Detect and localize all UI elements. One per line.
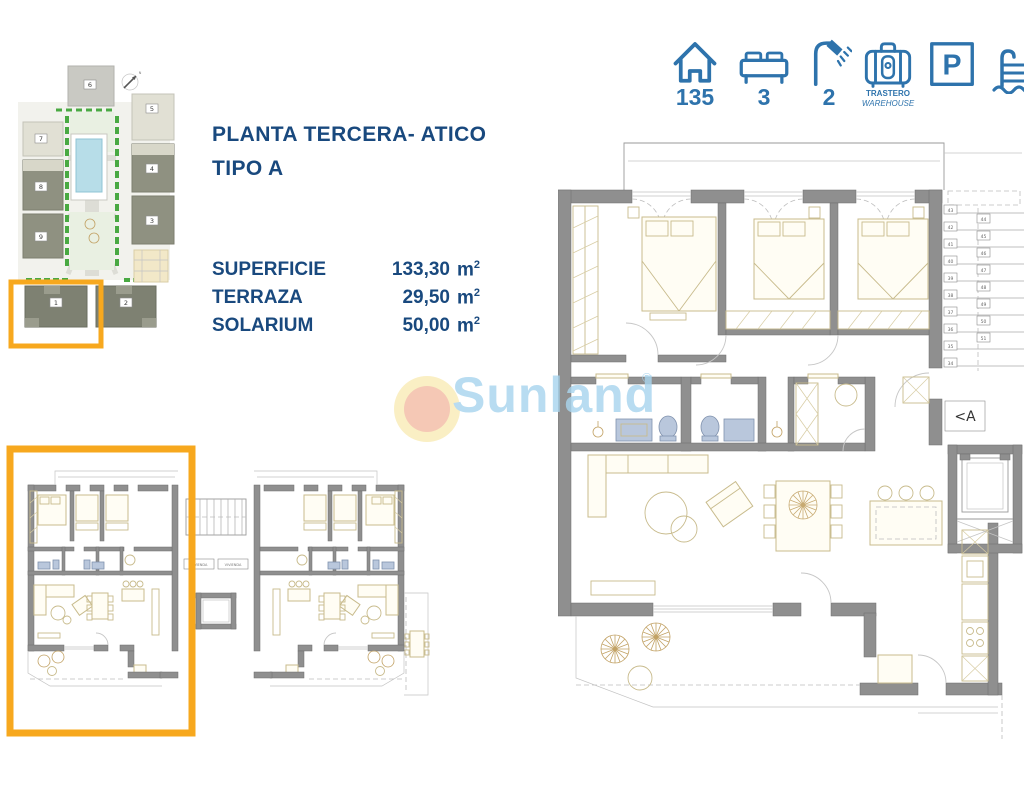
svg-text:51: 51 bbox=[981, 336, 987, 342]
entry-label: <A bbox=[945, 401, 985, 431]
armchair bbox=[706, 482, 753, 527]
svg-text:<A: <A bbox=[954, 409, 976, 425]
plaza bbox=[134, 250, 168, 282]
house-count: 135 bbox=[668, 84, 722, 111]
coffee-tables bbox=[645, 492, 697, 542]
surface-unit: m2 bbox=[450, 259, 480, 281]
svg-text:6: 6 bbox=[88, 81, 92, 89]
plan-title: PLANTA TERCERA- ATICO TIPO A bbox=[212, 118, 486, 186]
svg-text:35: 35 bbox=[948, 344, 954, 350]
parking-icon: P bbox=[928, 40, 976, 88]
svg-text:38: 38 bbox=[948, 293, 954, 299]
svg-text:49: 49 bbox=[981, 302, 987, 308]
elevator bbox=[957, 454, 1013, 542]
site-plan: 6 7 8 9 5 4 3 1 2 N bbox=[4, 46, 194, 350]
building-2-detail2 bbox=[142, 318, 156, 327]
building-1-detail2 bbox=[25, 318, 39, 327]
svg-text:9: 9 bbox=[39, 233, 43, 241]
svg-text:34: 34 bbox=[948, 361, 954, 367]
surface-value: 133,30 bbox=[386, 259, 450, 281]
entry-closet bbox=[903, 377, 929, 403]
kitchen-island bbox=[870, 486, 942, 545]
svg-text:46: 46 bbox=[981, 251, 987, 257]
building-5 bbox=[132, 94, 174, 140]
closet-bed2 bbox=[726, 311, 830, 329]
svg-text:N: N bbox=[139, 71, 142, 75]
sun-logo-inner bbox=[404, 386, 450, 432]
unit-left bbox=[28, 471, 178, 686]
surface-table: SUPERFICIE 133,30 m2 TERRAZA 29,50 m2 SO… bbox=[212, 259, 480, 343]
svg-text:47: 47 bbox=[981, 268, 987, 274]
unit-right bbox=[254, 471, 404, 686]
bed-count: 3 bbox=[737, 84, 791, 111]
plan-title-line2: TIPO A bbox=[212, 152, 486, 186]
shower-icon bbox=[808, 36, 852, 86]
building-2-detail bbox=[116, 286, 132, 294]
surface-unit: m2 bbox=[450, 315, 480, 337]
compass-icon: N bbox=[122, 71, 142, 90]
svg-text:2: 2 bbox=[124, 299, 128, 307]
svg-text:44: 44 bbox=[981, 217, 987, 223]
surface-unit: m2 bbox=[450, 287, 480, 309]
surface-row: TERRAZA 29,50 m2 bbox=[212, 287, 480, 315]
right-side-terrace bbox=[404, 593, 429, 695]
surface-row: SUPERFICIE 133,30 m2 bbox=[212, 259, 480, 287]
building-4-roof bbox=[132, 144, 174, 155]
wardrobe bbox=[573, 206, 598, 354]
dining-table bbox=[764, 481, 842, 551]
communal-stairs: 43 42 41 40 39 38 37 36 35 34 44 45 46 4… bbox=[944, 205, 1024, 371]
svg-text:39: 39 bbox=[948, 276, 954, 282]
svg-text:41: 41 bbox=[948, 242, 954, 248]
svg-text:3: 3 bbox=[150, 217, 154, 225]
plan-title-line1: PLANTA TERCERA- ATICO bbox=[212, 118, 486, 152]
svg-text:5: 5 bbox=[150, 105, 154, 113]
surface-value: 29,50 bbox=[386, 287, 450, 309]
shower-count: 2 bbox=[805, 84, 853, 111]
house-icon bbox=[670, 38, 720, 86]
sofa bbox=[588, 455, 708, 517]
bathroom-1 bbox=[593, 416, 677, 441]
svg-text:48: 48 bbox=[981, 285, 987, 291]
small-overview-plan: VIVIENDA VIVIENDA bbox=[0, 443, 432, 748]
bed-2 bbox=[754, 207, 824, 299]
parking-letter: P bbox=[942, 50, 961, 82]
pool-ladder-icon bbox=[992, 44, 1024, 94]
tv-sideboard bbox=[591, 581, 655, 595]
bed-3 bbox=[858, 207, 928, 299]
svg-text:36: 36 bbox=[948, 327, 954, 333]
svg-text:1: 1 bbox=[54, 299, 58, 307]
building-8-roof bbox=[23, 160, 63, 171]
sun-logo-outer bbox=[394, 376, 460, 442]
svg-text:8: 8 bbox=[39, 183, 43, 191]
surface-label: SOLARIUM bbox=[212, 315, 386, 337]
svg-text:4: 4 bbox=[150, 165, 154, 173]
living-window bbox=[653, 606, 773, 612]
main-floor-plan: 43 42 41 40 39 38 37 36 35 34 44 45 46 4… bbox=[558, 133, 1024, 748]
svg-text:50: 50 bbox=[981, 319, 987, 325]
svg-text:VIVIENDA: VIVIENDA bbox=[225, 563, 242, 567]
svg-text:45: 45 bbox=[981, 234, 987, 240]
plan-sheet-page: { "header": { "accent": "#2E73AC", "icon… bbox=[0, 0, 1024, 800]
building-1-detail bbox=[44, 286, 60, 294]
trastero-icon bbox=[860, 38, 916, 88]
surface-label: TERRAZA bbox=[212, 287, 386, 309]
terrace bbox=[576, 616, 1002, 739]
bed-1 bbox=[628, 207, 716, 320]
trastero-label: TRASTERO WAREHOUSE bbox=[852, 89, 924, 109]
trastero-label-en: WAREHOUSE bbox=[852, 99, 924, 109]
bathroom-2 bbox=[701, 416, 782, 441]
svg-text:42: 42 bbox=[948, 225, 954, 231]
trastero-label-es: TRASTERO bbox=[852, 89, 924, 99]
surface-value: 50,00 bbox=[386, 315, 450, 337]
utility-closet bbox=[878, 655, 912, 683]
surface-label: SUPERFICIE bbox=[212, 259, 386, 281]
svg-text:37: 37 bbox=[948, 310, 954, 316]
shower-room bbox=[796, 383, 857, 445]
surface-row: SOLARIUM 50,00 m2 bbox=[212, 315, 480, 343]
closet-bed3 bbox=[838, 311, 929, 329]
svg-text:7: 7 bbox=[39, 135, 43, 143]
bed-icon bbox=[738, 46, 790, 86]
pool bbox=[71, 134, 107, 200]
svg-text:40: 40 bbox=[948, 259, 954, 265]
svg-text:43: 43 bbox=[948, 208, 954, 214]
